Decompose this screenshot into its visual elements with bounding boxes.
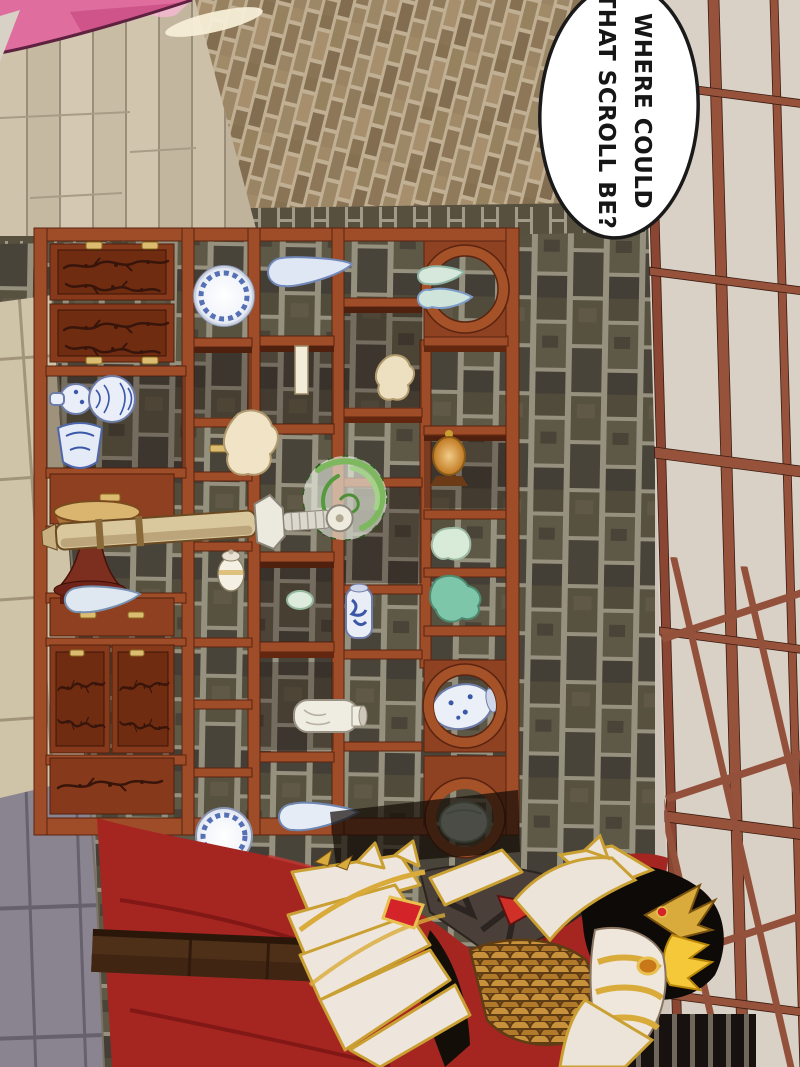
- cobalt-jar: [346, 584, 372, 638]
- scholar-rock-small: [376, 355, 414, 399]
- white-plaque: [295, 346, 308, 394]
- scene-canvas: WHERE COULD THAT SCROLL BE?: [0, 0, 800, 1067]
- speech-line-1: WHERE COULD: [629, 13, 655, 209]
- celadon-peach: [432, 528, 471, 560]
- speech-line-2: THAT SCROLL BE?: [593, 0, 619, 229]
- lidded-jar: [218, 550, 244, 592]
- scholar-rock: [224, 410, 278, 474]
- blue-white-bowl: [58, 423, 102, 468]
- porcelain-plate-upper: [194, 266, 254, 326]
- manga-panel: WHERE COULD THAT SCROLL BE?: [0, 0, 800, 1067]
- celadon-bowl: [287, 591, 313, 609]
- amber-gem: [638, 958, 658, 974]
